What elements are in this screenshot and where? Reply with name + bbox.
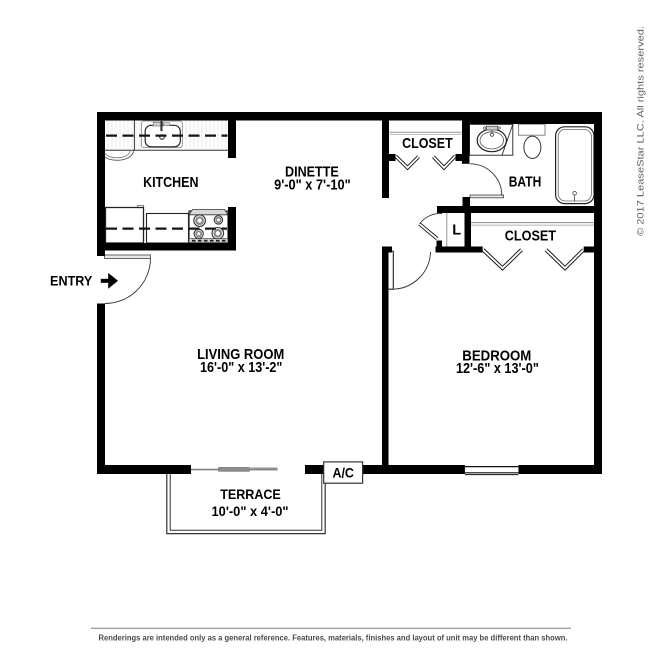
svg-text:© 2017 LeaseStar LLC. All righ: © 2017 LeaseStar LLC. All rights reserve… bbox=[636, 26, 647, 236]
svg-text:16'-0" x 13'-2": 16'-0" x 13'-2" bbox=[200, 359, 282, 376]
svg-text:CLOSET: CLOSET bbox=[402, 136, 453, 152]
svg-text:KITCHEN: KITCHEN bbox=[143, 174, 198, 191]
svg-text:BATH: BATH bbox=[509, 173, 542, 190]
svg-text:A/C: A/C bbox=[332, 465, 354, 480]
svg-text:9'-0" x 7'-10": 9'-0" x 7'-10" bbox=[274, 176, 351, 193]
svg-text:12'-6" x 13'-0": 12'-6" x 13'-0" bbox=[456, 360, 539, 377]
svg-text:Renderings are intended only a: Renderings are intended only as a genera… bbox=[99, 633, 568, 642]
svg-text:ENTRY: ENTRY bbox=[50, 272, 93, 288]
svg-text:TERRACE: TERRACE bbox=[220, 487, 281, 502]
svg-text:CLOSET: CLOSET bbox=[505, 228, 556, 244]
svg-text:L: L bbox=[452, 222, 461, 238]
svg-text:10'-0" x 4'-0": 10'-0" x 4'-0" bbox=[212, 503, 289, 519]
